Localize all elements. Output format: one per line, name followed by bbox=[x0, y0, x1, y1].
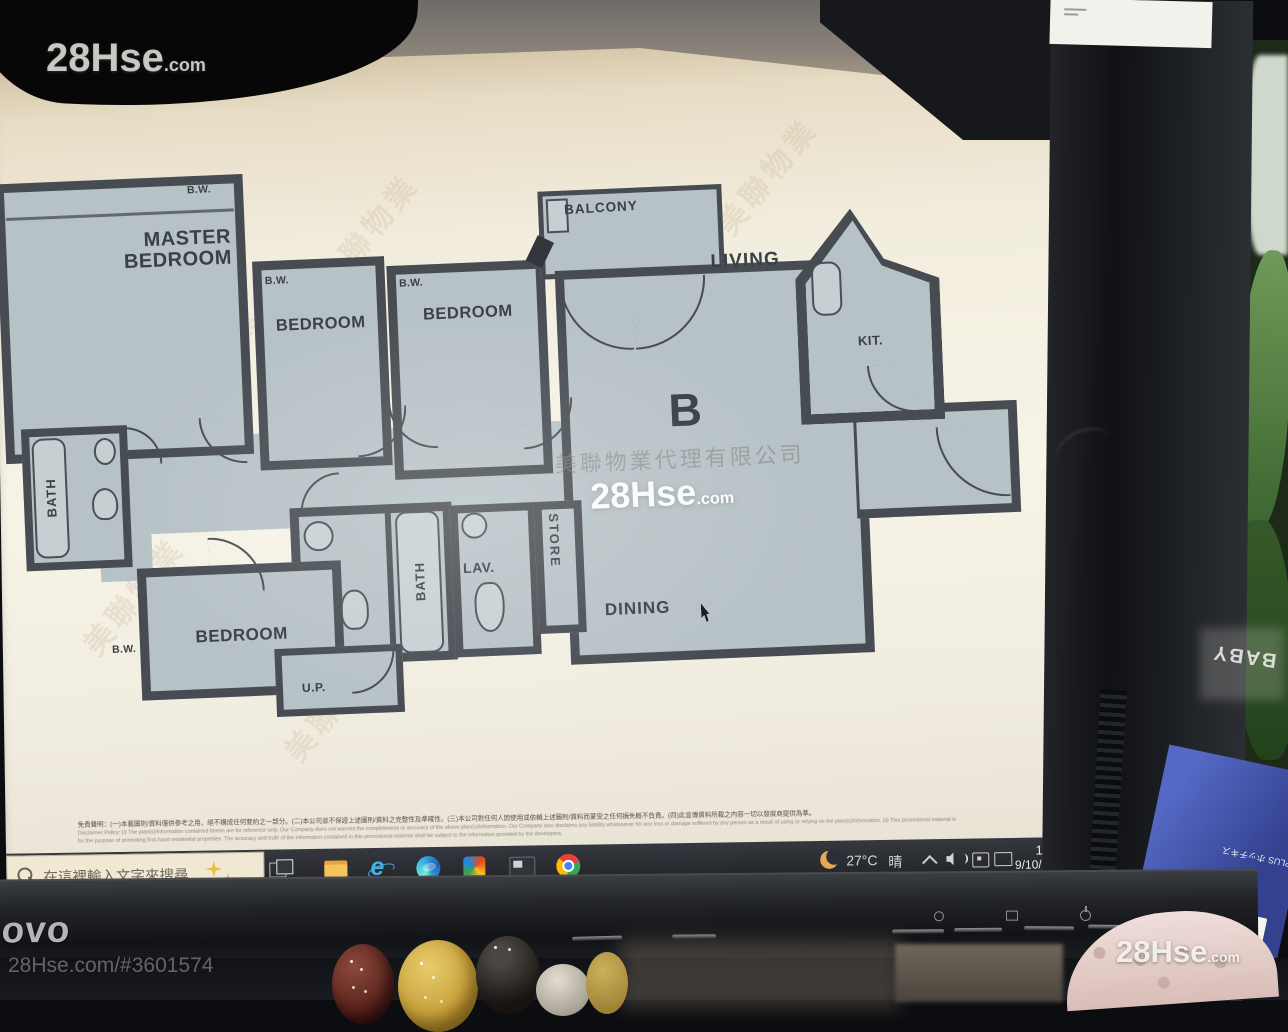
egg-specks bbox=[350, 960, 353, 963]
copilot-sparkle-icon bbox=[205, 860, 222, 877]
paper-mark bbox=[1064, 13, 1078, 15]
room-label-utility-platform: U.P. bbox=[302, 681, 326, 695]
tray-weather[interactable]: 晴 bbox=[888, 852, 902, 872]
bathtub: BATH bbox=[31, 438, 70, 559]
unit-label: B bbox=[668, 385, 704, 435]
site-watermark-brand: 28Hse bbox=[589, 471, 697, 516]
bay-window-label: B.W. bbox=[187, 183, 211, 196]
monitor-brand-logo: novo bbox=[0, 909, 72, 952]
bezel-vent-slots bbox=[1089, 689, 1127, 880]
desk-paper-stack bbox=[895, 944, 1063, 1002]
site-watermark-tld: .com bbox=[164, 55, 206, 75]
decorative-egg-yellow-small bbox=[586, 952, 628, 1014]
bay-window-label: B.W. bbox=[112, 643, 136, 656]
bay-window-label: B.W. bbox=[399, 277, 423, 290]
tray-input-dot bbox=[977, 856, 981, 860]
menu-button bbox=[1006, 911, 1018, 921]
listing-url-watermark: 28Hse.com/#3601574 bbox=[8, 954, 213, 978]
site-watermark-center: 28Hse.com bbox=[589, 470, 735, 518]
task-view-icon bbox=[276, 859, 293, 874]
room-label-dining: DINING bbox=[605, 599, 671, 620]
tray-input-indicator-icon[interactable] bbox=[972, 852, 989, 867]
tray-temperature[interactable]: 27°C bbox=[846, 852, 878, 868]
toilet bbox=[91, 488, 118, 521]
lace-holes bbox=[1093, 947, 1106, 960]
door-arc bbox=[208, 536, 265, 593]
egg-specks bbox=[420, 962, 423, 965]
decorative-egg-yellow bbox=[398, 940, 478, 1032]
brightness-button bbox=[934, 911, 944, 921]
site-watermark-tld: .com bbox=[696, 489, 735, 509]
paper-mark bbox=[1064, 8, 1086, 11]
paper-sheet bbox=[1049, 0, 1212, 48]
bezel-highlight bbox=[954, 928, 1002, 932]
site-watermark-bottom-right: 28Hse.com bbox=[1116, 934, 1240, 970]
room-label-master-bedroom: MASTER BEDROOM bbox=[85, 227, 233, 275]
window-light bbox=[1248, 55, 1288, 255]
site-watermark-brand: 28Hse bbox=[1116, 934, 1207, 969]
weather-moon-icon bbox=[820, 851, 838, 869]
decorative-egg-white bbox=[536, 964, 590, 1016]
power-button-line bbox=[1085, 906, 1087, 912]
bathtub: BATH bbox=[395, 510, 445, 654]
bay-window-label: B.W. bbox=[265, 274, 289, 287]
package-brand-text: PLUS ホッチキス bbox=[1182, 836, 1288, 872]
room-label-bath-2: BATH bbox=[411, 562, 428, 602]
photos-icon-detail bbox=[513, 861, 522, 868]
speaker-wave bbox=[959, 854, 968, 864]
floor-plan: B.W. MASTER BEDROOM BATH B.W. BEDROOM B.… bbox=[0, 131, 1047, 740]
monitor-screen: 美聯物業 美聯物業 美聯物業 美聯物業 美聯物業 美聯物業 美聯物業 美聯物業 … bbox=[0, 27, 1127, 898]
bezel-smudge bbox=[1048, 419, 1120, 483]
bezel-highlight bbox=[1024, 926, 1074, 930]
egg-specks bbox=[494, 946, 497, 949]
moon-shadow bbox=[826, 849, 842, 865]
room-label-store: STORE bbox=[546, 513, 563, 568]
disclaimer: 免責聲明：(一)本載圖則/資料僅供參考之用，絕不構成任何要約之一部分。(二)本公… bbox=[78, 803, 1063, 844]
desk-blur-object bbox=[620, 938, 900, 1008]
chevron-up-icon[interactable] bbox=[922, 855, 938, 871]
decorative-egg-black bbox=[476, 936, 540, 1014]
bezel-highlight bbox=[892, 929, 944, 933]
room-label-kitchen: KIT. bbox=[858, 333, 884, 348]
room-label-living: LIVING bbox=[710, 250, 780, 273]
room-label-bath-1: BATH bbox=[42, 478, 59, 518]
toilet bbox=[340, 589, 370, 630]
site-watermark-top-left: 28Hse.com bbox=[46, 36, 206, 81]
speaker-icon[interactable] bbox=[946, 852, 958, 866]
decorative-egg-red bbox=[332, 944, 394, 1024]
room-label-lavatory: LAV. bbox=[463, 560, 495, 576]
bezel-highlight bbox=[572, 936, 622, 941]
site-watermark-tld: .com bbox=[1207, 949, 1240, 965]
kitchen-sink bbox=[811, 261, 843, 316]
site-watermark-brand: 28Hse bbox=[46, 36, 164, 80]
